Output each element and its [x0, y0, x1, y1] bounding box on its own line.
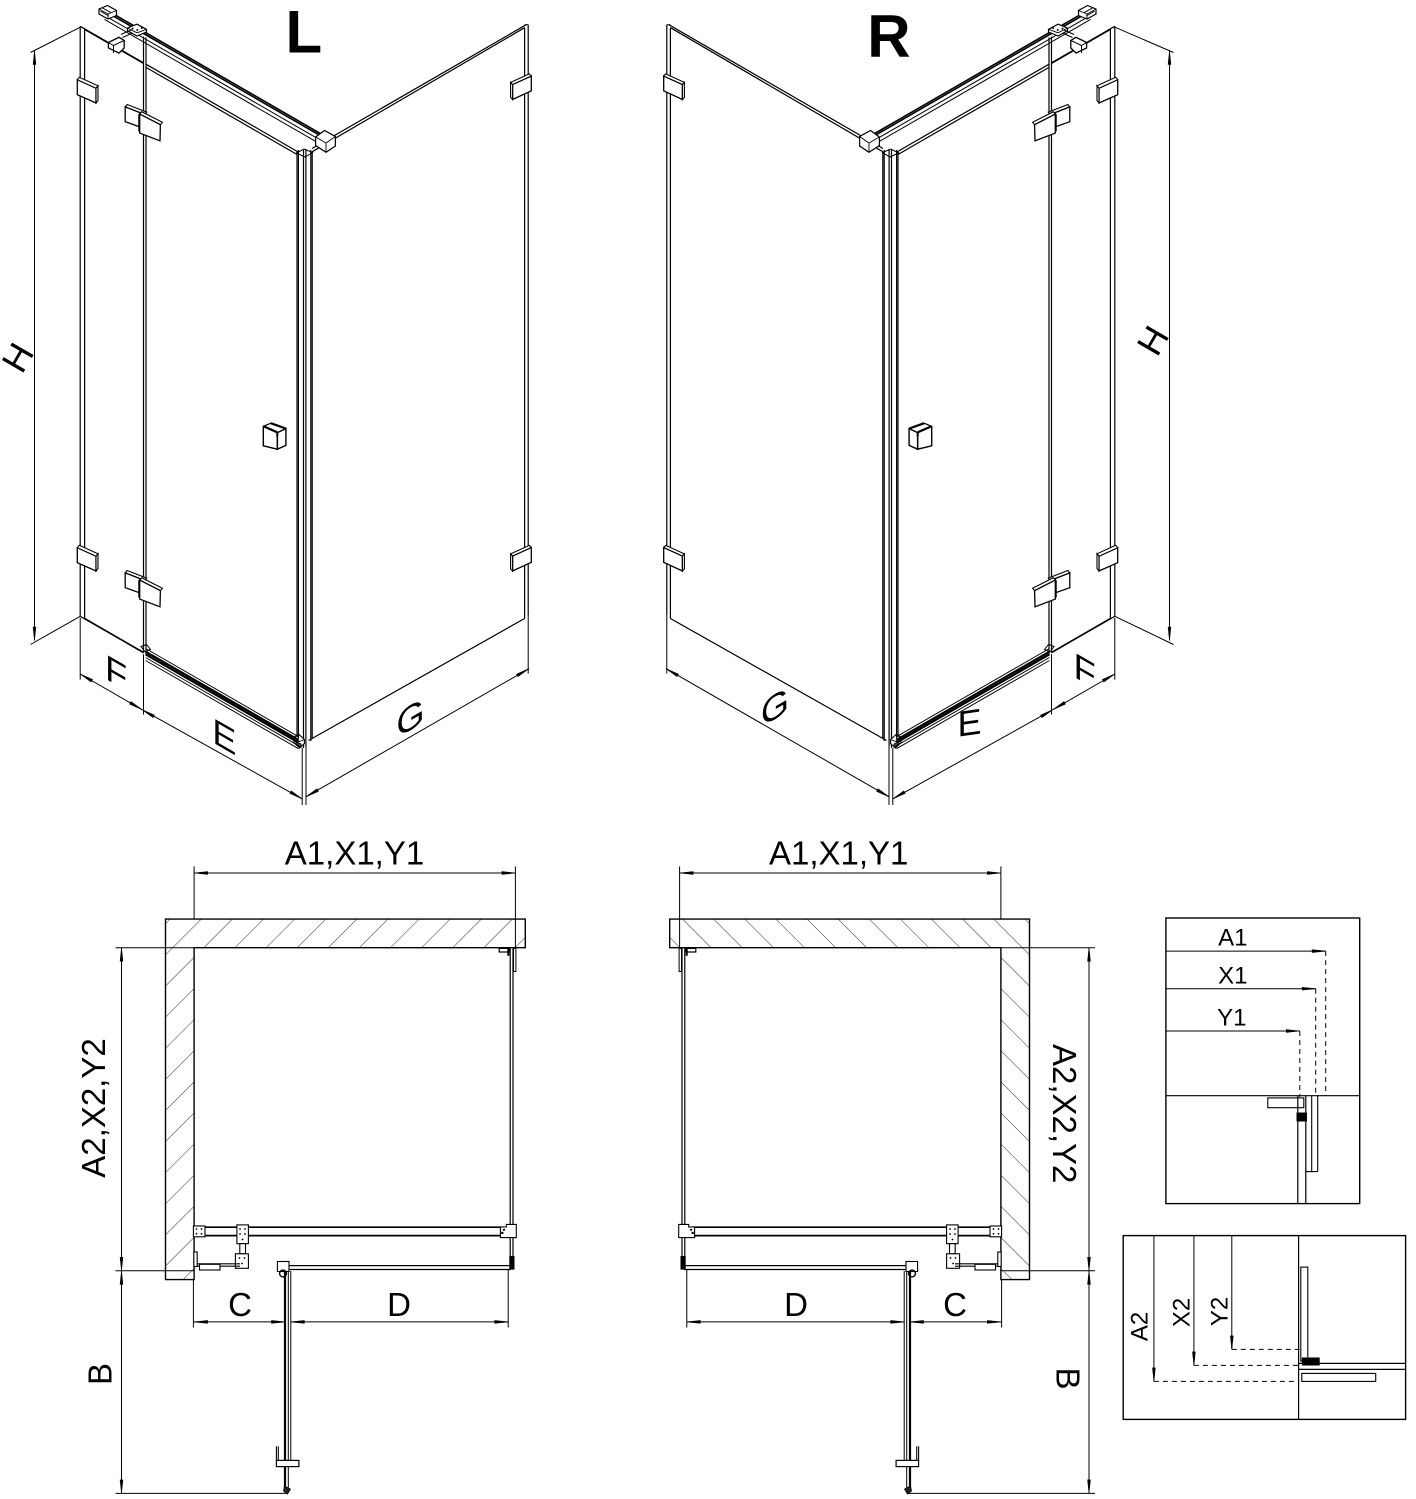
svg-text:A1,X1,Y1: A1,X1,Y1	[285, 834, 424, 871]
svg-text:Y2: Y2	[1207, 1297, 1234, 1326]
svg-text:R: R	[867, 3, 910, 70]
svg-text:D: D	[784, 1286, 808, 1323]
svg-text:B: B	[81, 1363, 118, 1385]
svg-text:X1: X1	[1218, 963, 1247, 990]
svg-text:B: B	[1050, 1367, 1087, 1389]
svg-text:A2,X2,Y2: A2,X2,Y2	[1046, 1044, 1083, 1183]
svg-text:A1,X1,Y1: A1,X1,Y1	[769, 834, 908, 871]
svg-text:A1: A1	[1218, 925, 1247, 952]
svg-text:C: C	[228, 1286, 252, 1323]
svg-text:L: L	[285, 0, 322, 65]
svg-text:Y1: Y1	[1217, 1004, 1246, 1031]
svg-text:A2: A2	[1127, 1312, 1154, 1341]
svg-text:X2: X2	[1169, 1298, 1196, 1327]
svg-text:D: D	[387, 1286, 411, 1323]
svg-text:C: C	[943, 1286, 967, 1323]
svg-text:A2,X2,Y2: A2,X2,Y2	[75, 1038, 112, 1177]
svg-text:E: E	[957, 700, 981, 744]
